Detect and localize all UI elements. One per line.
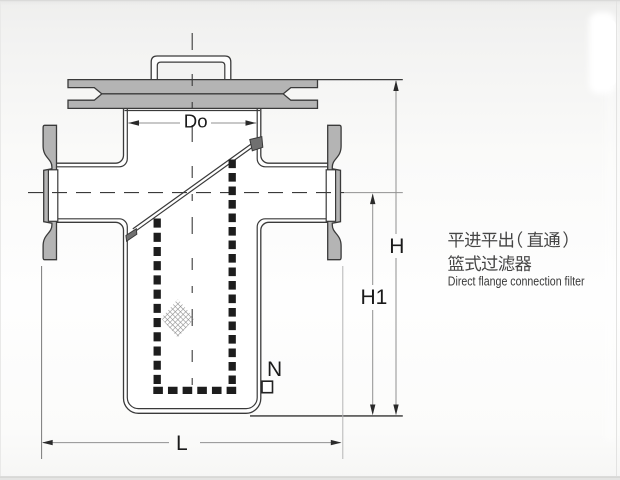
svg-text:Do: Do [184, 111, 208, 132]
svg-text:L: L [176, 432, 188, 455]
svg-text:Direct flange connection filte: Direct flange connection filter [448, 274, 585, 289]
svg-text:H1: H1 [361, 286, 388, 309]
svg-text:N: N [267, 358, 282, 381]
svg-text:H: H [389, 235, 404, 258]
